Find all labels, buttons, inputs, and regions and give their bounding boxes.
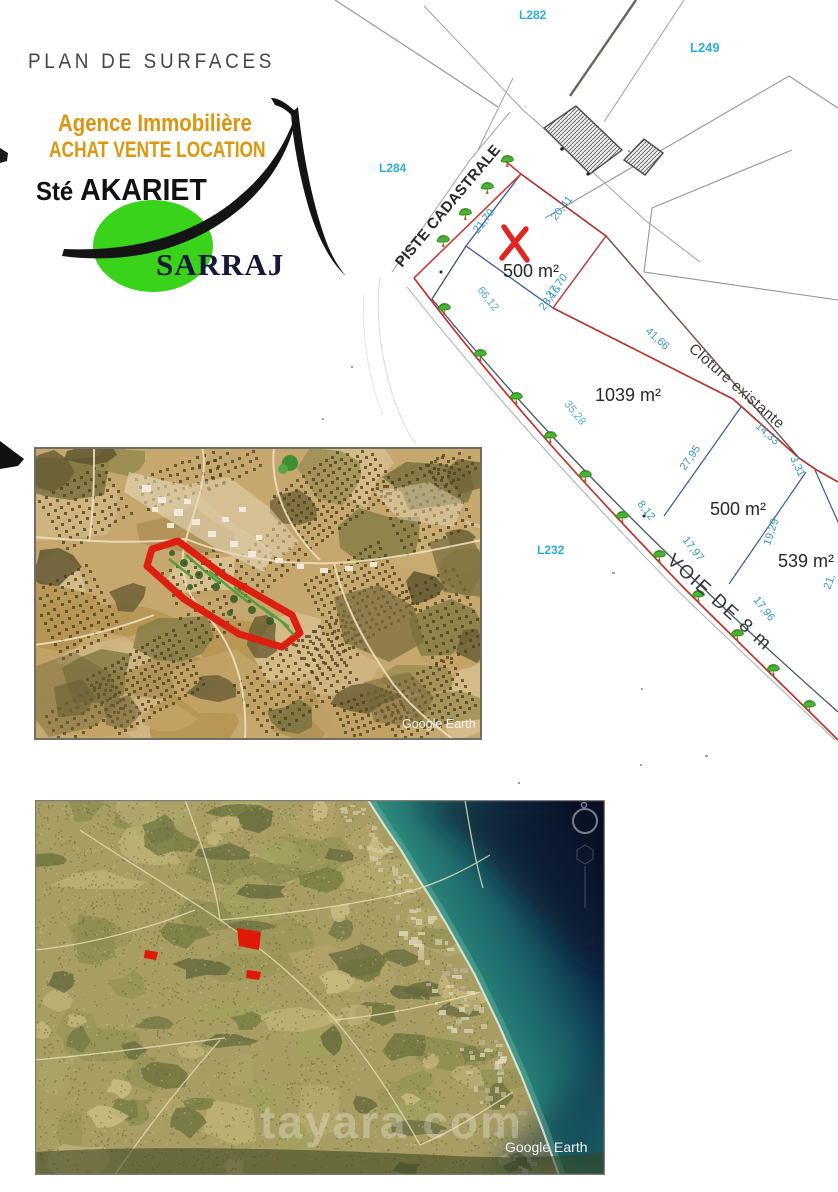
svg-text:41,66: 41,66 — [643, 325, 671, 352]
svg-text:66,12: 66,12 — [475, 284, 501, 313]
svg-text:L284: L284 — [379, 161, 407, 175]
svg-text:539 m²: 539 m² — [778, 551, 834, 571]
svg-text:Google Earth: Google Earth — [505, 1139, 588, 1155]
svg-text:27,95: 27,95 — [678, 443, 704, 472]
svg-text:19,29: 19,29 — [761, 517, 781, 547]
svg-text:tayara com: tayara com — [260, 1096, 523, 1148]
svg-text:Google Earth: Google Earth — [402, 717, 476, 731]
svg-text:500 m²: 500 m² — [503, 261, 559, 281]
svg-text:L282: L282 — [519, 8, 547, 22]
svg-text:Clôture existante: Clôture existante — [685, 340, 788, 432]
svg-text:500 m²: 500 m² — [710, 499, 766, 519]
svg-text:21,70: 21,70 — [471, 207, 497, 236]
svg-text:L249: L249 — [690, 40, 720, 55]
svg-text:1039 m²: 1039 m² — [595, 385, 661, 405]
svg-text:8,12: 8,12 — [635, 498, 658, 522]
svg-text:35,28: 35,28 — [562, 398, 588, 427]
svg-text:L232: L232 — [537, 543, 565, 557]
svg-text:21,: 21, — [822, 573, 838, 591]
